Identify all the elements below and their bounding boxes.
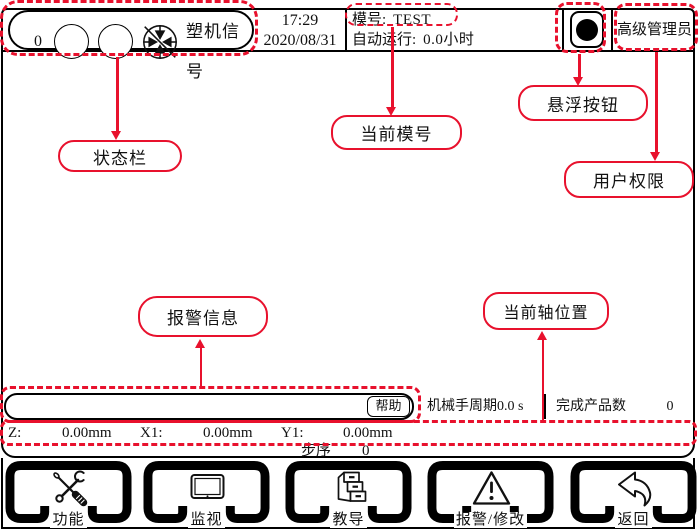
annotation-box-user-permission (614, 3, 698, 51)
arrow-current-mold (391, 27, 394, 108)
toolbar-button-label: 教导 (285, 512, 412, 528)
arrow-status-bar (116, 57, 119, 132)
annotation-label-floating-button: 悬浮按钮 (518, 85, 648, 121)
toolbar-button-label: 监视 (143, 512, 270, 528)
arrow-floating-button (578, 54, 581, 78)
arrow-axis-position (542, 339, 545, 422)
warning-icon (471, 468, 511, 508)
annotation-box-current-mold (345, 3, 458, 26)
toolbar-button-label: 返回 (570, 512, 697, 528)
products-value: 0 (660, 393, 680, 420)
date-text: 2020/08/31 (256, 31, 344, 51)
cycle-value: 0.0 s (497, 399, 523, 414)
cabinet-icon (329, 468, 369, 508)
toolbar-button-teach[interactable]: 教导 (285, 461, 412, 529)
annotation-box-floating-button (555, 2, 606, 53)
hmi-annotated-screenshot: 0 塑机信号 17:29 2020/08/31 模号:TEST 自动运行:0.0… (0, 0, 700, 531)
annotation-label-current-mold: 当前模号 (331, 115, 462, 150)
clock: 17:29 2020/08/31 (256, 9, 344, 51)
products-label: 完成产品数 (556, 399, 626, 414)
annotation-box-axis-bar (0, 420, 697, 446)
time-text: 17:29 (256, 11, 344, 31)
finished-products-stat: 完成产品数 (556, 393, 626, 420)
toolbar-button-back[interactable]: 返回 (570, 461, 697, 529)
autorun-value: 0.0小时 (423, 32, 474, 48)
cycle-label: 机械手周期 (427, 399, 497, 414)
toolbar-button-label: 报警/修改 (427, 512, 554, 528)
arrowhead-status-bar (111, 131, 121, 140)
annotation-box-alarm-bar (0, 386, 421, 423)
tools-icon (49, 468, 89, 508)
autorun-label: 自动运行: (352, 32, 416, 48)
annotation-label-alarm-info: 报警信息 (138, 296, 268, 337)
annotation-label-axis-position: 当前轴位置 (483, 292, 609, 330)
annotation-label-user-permission: 用户权限 (564, 161, 694, 198)
stats-divider (544, 394, 546, 419)
arrowhead-user-permission (650, 152, 660, 161)
annotation-label-status-bar: 状态栏 (58, 140, 182, 172)
back-arrow-icon (614, 468, 654, 508)
toolbar-button-function[interactable]: 功能 (5, 461, 132, 529)
annotation-box-status-bar (0, 0, 258, 56)
toolbar-button-label: 功能 (5, 512, 132, 528)
toolbar-button-monitor[interactable]: 监视 (143, 461, 270, 529)
arrow-alarm-info (200, 347, 203, 388)
monitor-icon (187, 468, 227, 508)
autorun-row: 自动运行:0.0小时 (352, 30, 552, 50)
robot-cycle-stat: 机械手周期0.0 s (427, 393, 523, 420)
toolbar-button-alarm[interactable]: 报警/修改 (427, 461, 554, 529)
arrow-user-permission (655, 52, 658, 153)
